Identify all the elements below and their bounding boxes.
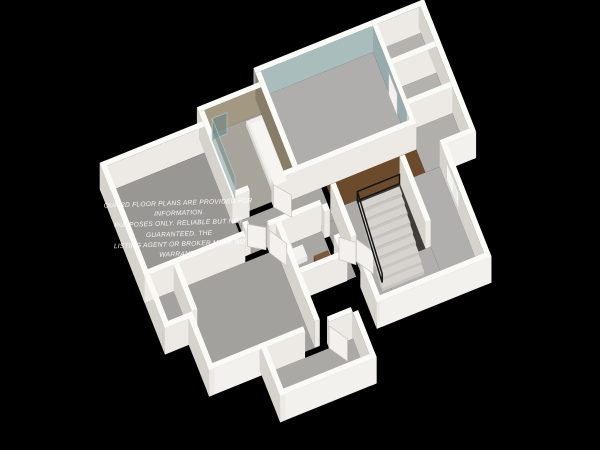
- wall-stair-east-south: [426, 220, 431, 249]
- wall-sw-east-south: [315, 320, 320, 349]
- floorplan-render-stage: OUR 2D FLOOR PLANS ARE PROVIDED FOR INFO…: [0, 0, 600, 450]
- wall-se-south-west: [375, 297, 377, 329]
- wall-entry-west-south: [280, 394, 285, 423]
- wall-small-bath-east-a-south: [325, 210, 330, 239]
- wall-bay-south-west: [440, 140, 442, 172]
- wall-sw-south-west: [207, 365, 209, 397]
- wall-entry-south-west: [278, 391, 280, 423]
- door-small-bath: [339, 237, 356, 264]
- wall-sw-west-south: [209, 368, 214, 397]
- floorplan-3d-render: [0, 0, 600, 450]
- watermark-disclaimer: OUR 2D FLOOR PLANS ARE PROVIDED FOR INFO…: [93, 196, 265, 263]
- wall-y14-a-west: [143, 271, 145, 303]
- wall-west-closet-south-west: [163, 323, 165, 355]
